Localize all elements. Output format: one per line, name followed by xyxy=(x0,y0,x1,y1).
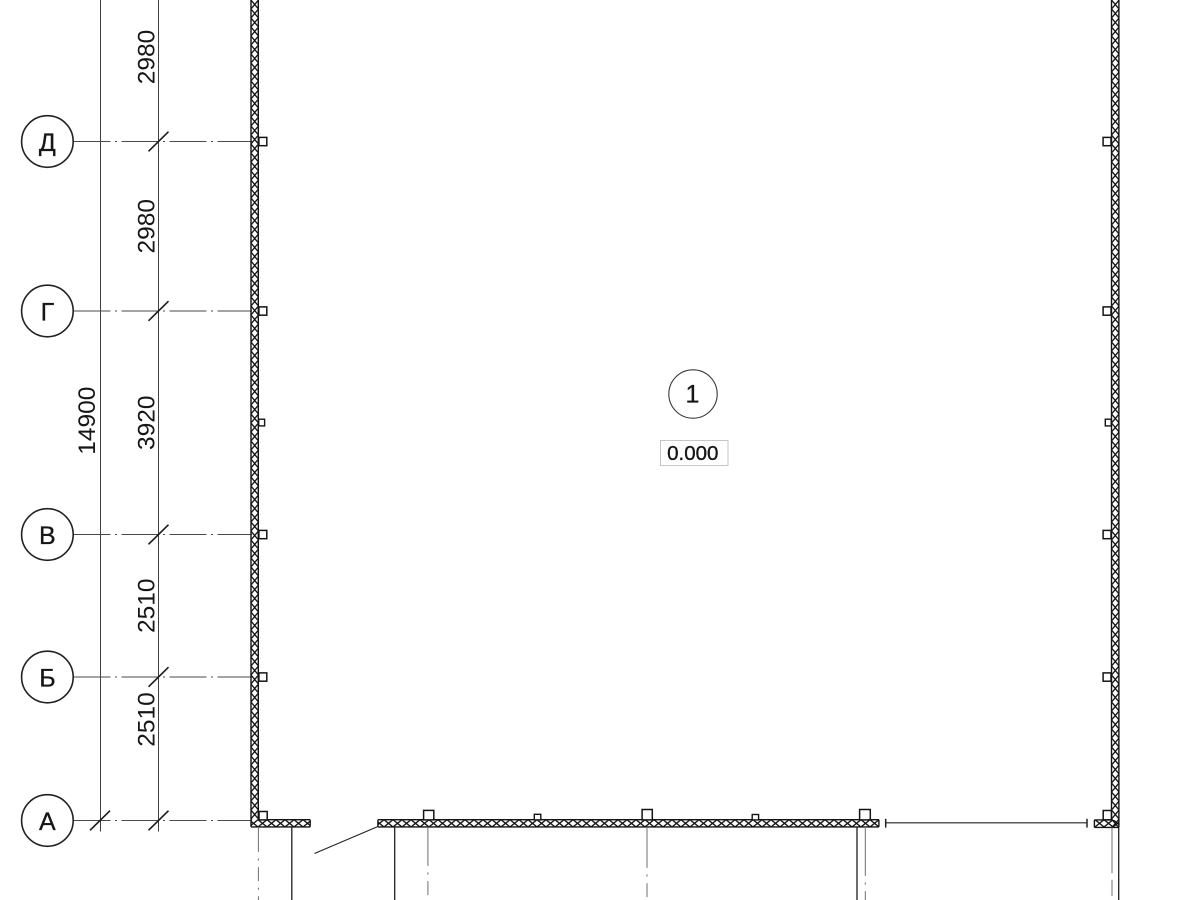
svg-text:Г: Г xyxy=(41,299,55,327)
svg-text:В: В xyxy=(39,522,56,550)
svg-text:А: А xyxy=(39,808,56,836)
svg-text:2510: 2510 xyxy=(134,579,161,634)
svg-text:3920: 3920 xyxy=(134,396,161,451)
svg-text:2980: 2980 xyxy=(134,199,161,254)
svg-text:Д: Д xyxy=(39,129,56,157)
svg-text:Б: Б xyxy=(39,665,55,693)
svg-text:2980: 2980 xyxy=(134,30,161,85)
svg-text:0.000: 0.000 xyxy=(667,442,718,465)
svg-text:1: 1 xyxy=(686,381,700,409)
svg-text:2510: 2510 xyxy=(134,692,161,747)
svg-text:14900: 14900 xyxy=(74,387,101,455)
